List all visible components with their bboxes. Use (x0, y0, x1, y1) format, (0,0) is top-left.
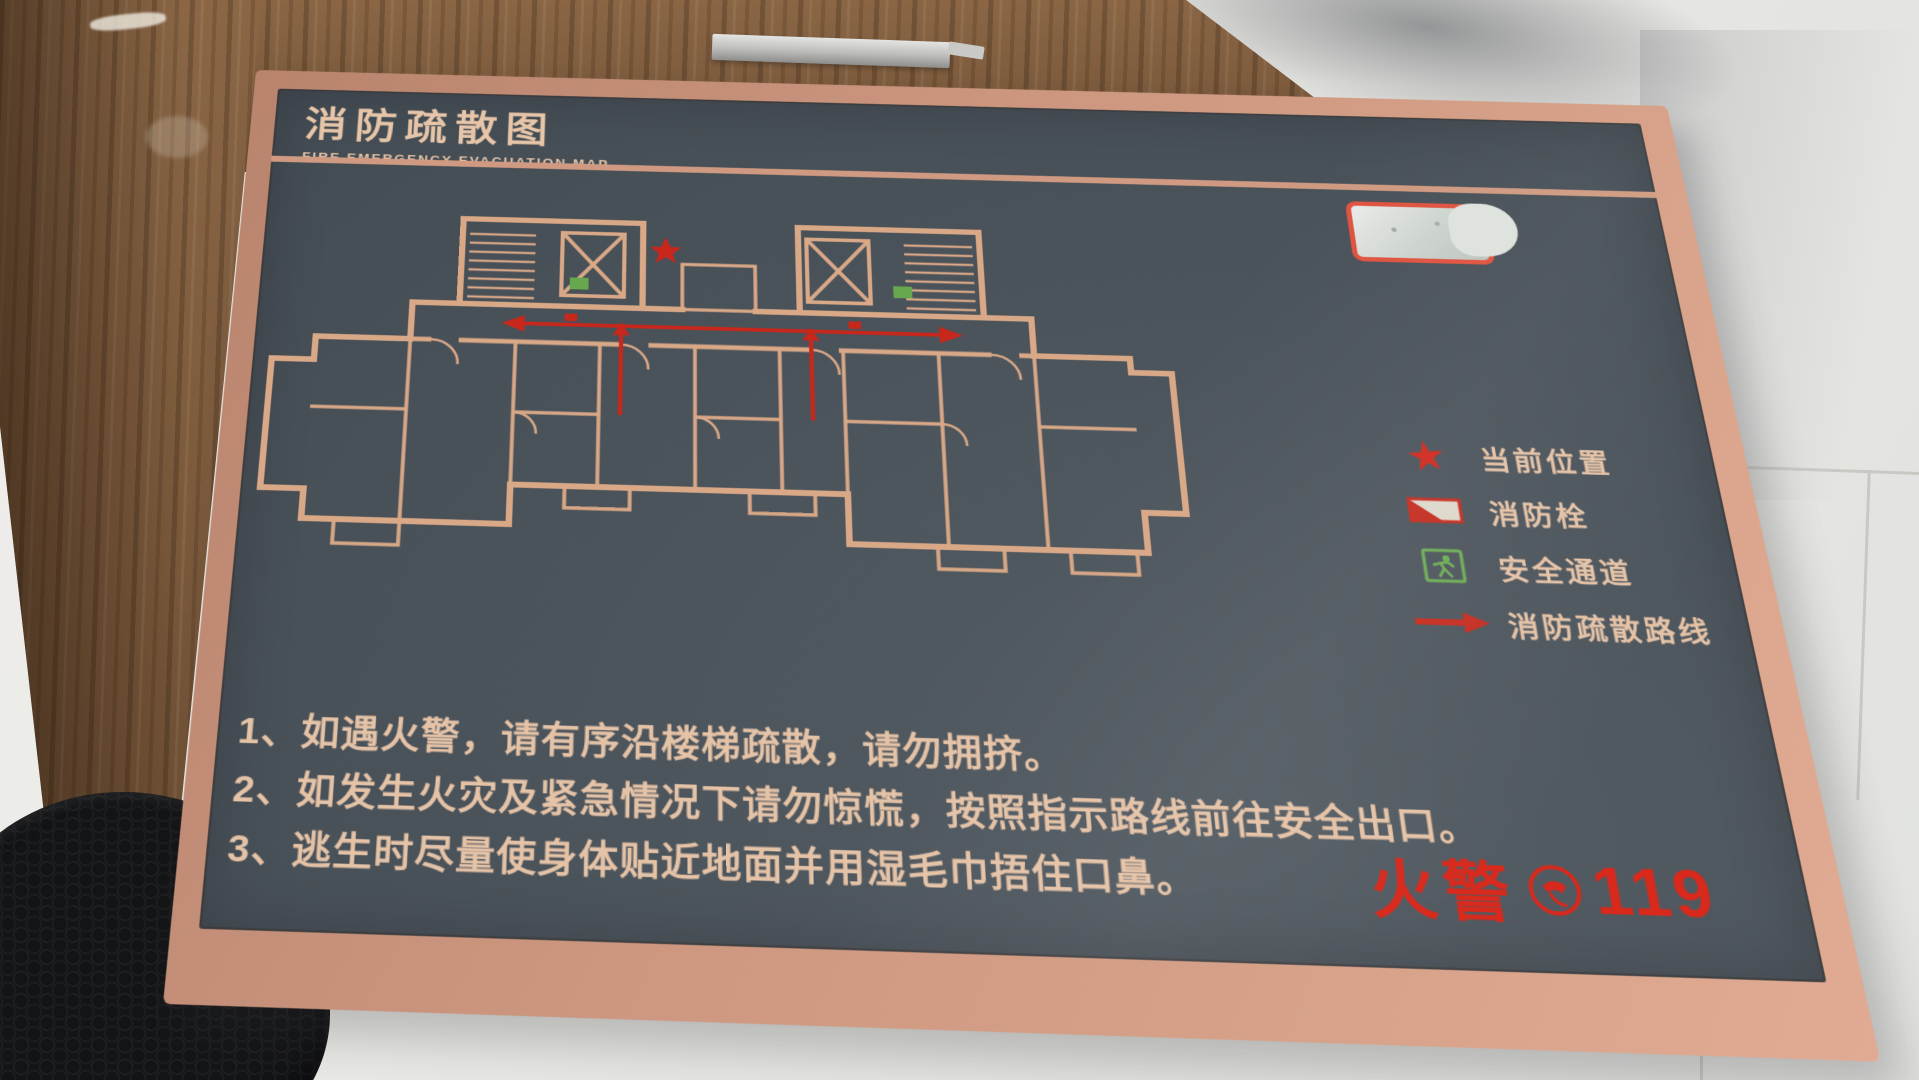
legend-row-fire-hydrant: 消防栓 (1391, 489, 1692, 537)
evacuation-route-line (498, 315, 968, 425)
legend-label: 消防栓 (1486, 493, 1592, 535)
outer-walls (257, 214, 1191, 554)
fire-hydrant-icon (1406, 497, 1465, 524)
instruction-line-3: 3、逃生时尽量使身体贴近地面并用湿毛巾捂住口鼻。 (225, 819, 1493, 921)
instruction-line-2: 2、如发生火灾及紧急情况下请勿惊慌，按照指示路线前往安全出口。 (230, 760, 1483, 859)
fire-alarm-label: 火警 (1363, 837, 1524, 936)
sign-subtitle: FIRE EMERGENCY EVACUATION MAP (301, 150, 609, 171)
legend: ★ 当前位置 消防栓 (1383, 436, 1719, 667)
legend-label: 当前位置 (1477, 439, 1615, 481)
door-swing-arcs (426, 339, 1026, 447)
floor-plan-drawing (227, 166, 1213, 637)
corridor-walls (410, 339, 1034, 356)
fire-evacuation-sign: 消防疏散图 FIRE EMERGENCY EVACUATION MAP (163, 70, 1881, 1062)
damaged-sticker (1345, 201, 1496, 265)
legend-label: 安全通道 (1495, 548, 1636, 592)
title-divider-line (271, 156, 1656, 198)
legend-row-current-location: ★ 当前位置 (1383, 436, 1681, 483)
room-partitions (298, 255, 1150, 576)
current-location-star-icon: ★ (1401, 435, 1452, 478)
stairwell-treads (467, 234, 976, 310)
legend-row-evacuation-route: 消防疏散路线 (1408, 600, 1716, 651)
sign-title-block: 消防疏散图 FIRE EMERGENCY EVACUATION MAP (301, 96, 610, 170)
safe-exit-icon (1420, 548, 1468, 584)
instruction-list: 1、如遇火警，请有序沿楼梯疏散，请勿拥挤。 2、如发生火灾及紧急情况下请勿惊慌，… (225, 703, 1493, 921)
evacuation-route-arrow-icon (1411, 610, 1494, 635)
instruction-line-1: 1、如遇火警，请有序沿楼梯疏散，请勿拥挤。 (236, 703, 1475, 800)
fire-alarm-number: 119 (1586, 852, 1723, 934)
phone-circle-icon (1522, 861, 1589, 918)
photo-scene: 消防疏散图 FIRE EMERGENCY EVACUATION MAP (0, 0, 1919, 1080)
safe-exit-marks (570, 277, 913, 298)
current-location-star-icon (650, 237, 682, 264)
fire-hydrant-marks (565, 314, 862, 330)
fire-alarm-block: 火警 119 (1363, 837, 1725, 942)
legend-row-safe-exit: 安全通道 (1400, 544, 1705, 594)
scuff-mark (146, 116, 208, 158)
sign-title: 消防疏散图 (303, 96, 611, 155)
elevator-shafts (561, 233, 871, 304)
sign-panel: 消防疏散图 FIRE EMERGENCY EVACUATION MAP (199, 89, 1827, 983)
legend-label: 消防疏散路线 (1505, 604, 1717, 651)
